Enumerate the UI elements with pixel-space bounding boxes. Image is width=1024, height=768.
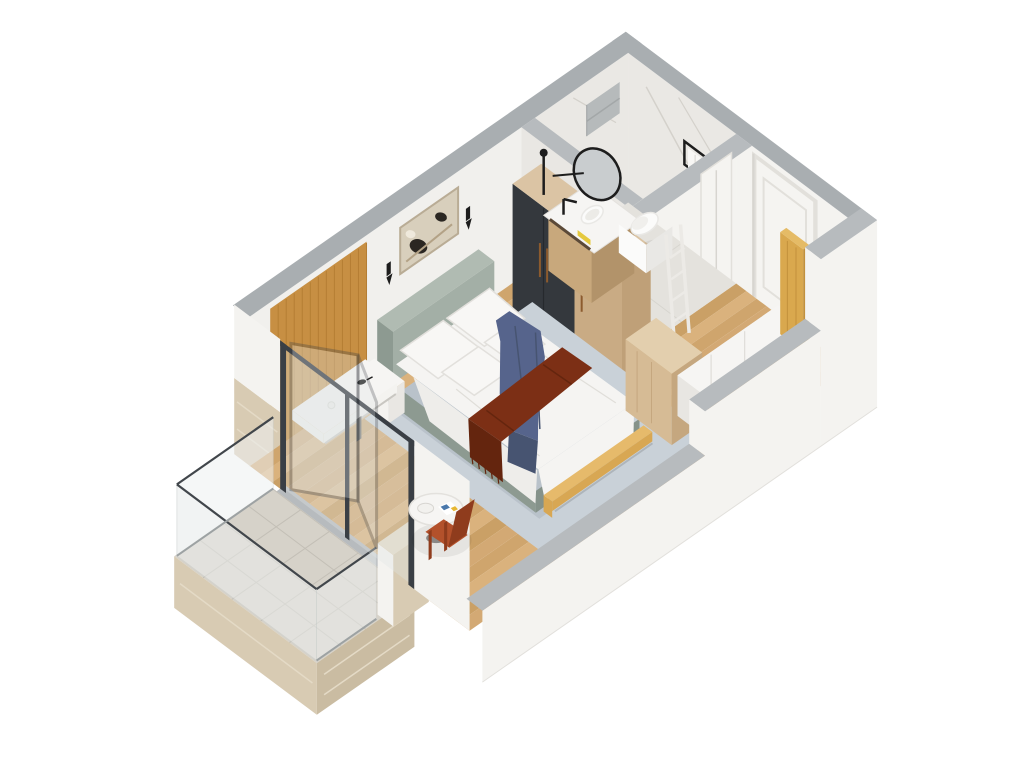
runner-fringe [498, 477, 499, 483]
lounge-chair-leg [429, 530, 432, 561]
wall-lamp-head-icon [540, 149, 548, 157]
runner-fringe [479, 463, 480, 469]
runner-fringe [485, 468, 486, 474]
front-wall-exterior [821, 220, 877, 446]
floor-plan-render [0, 0, 1024, 768]
floorplan-canvas [0, 0, 1024, 768]
open-door-leaf [291, 343, 358, 501]
plate [418, 503, 434, 513]
front-wall-step [805, 247, 821, 330]
runner-fringe [472, 458, 473, 464]
lounge-chair-leg [444, 521, 447, 552]
door-frame-bar [280, 340, 286, 493]
runner-fringe [491, 472, 492, 478]
